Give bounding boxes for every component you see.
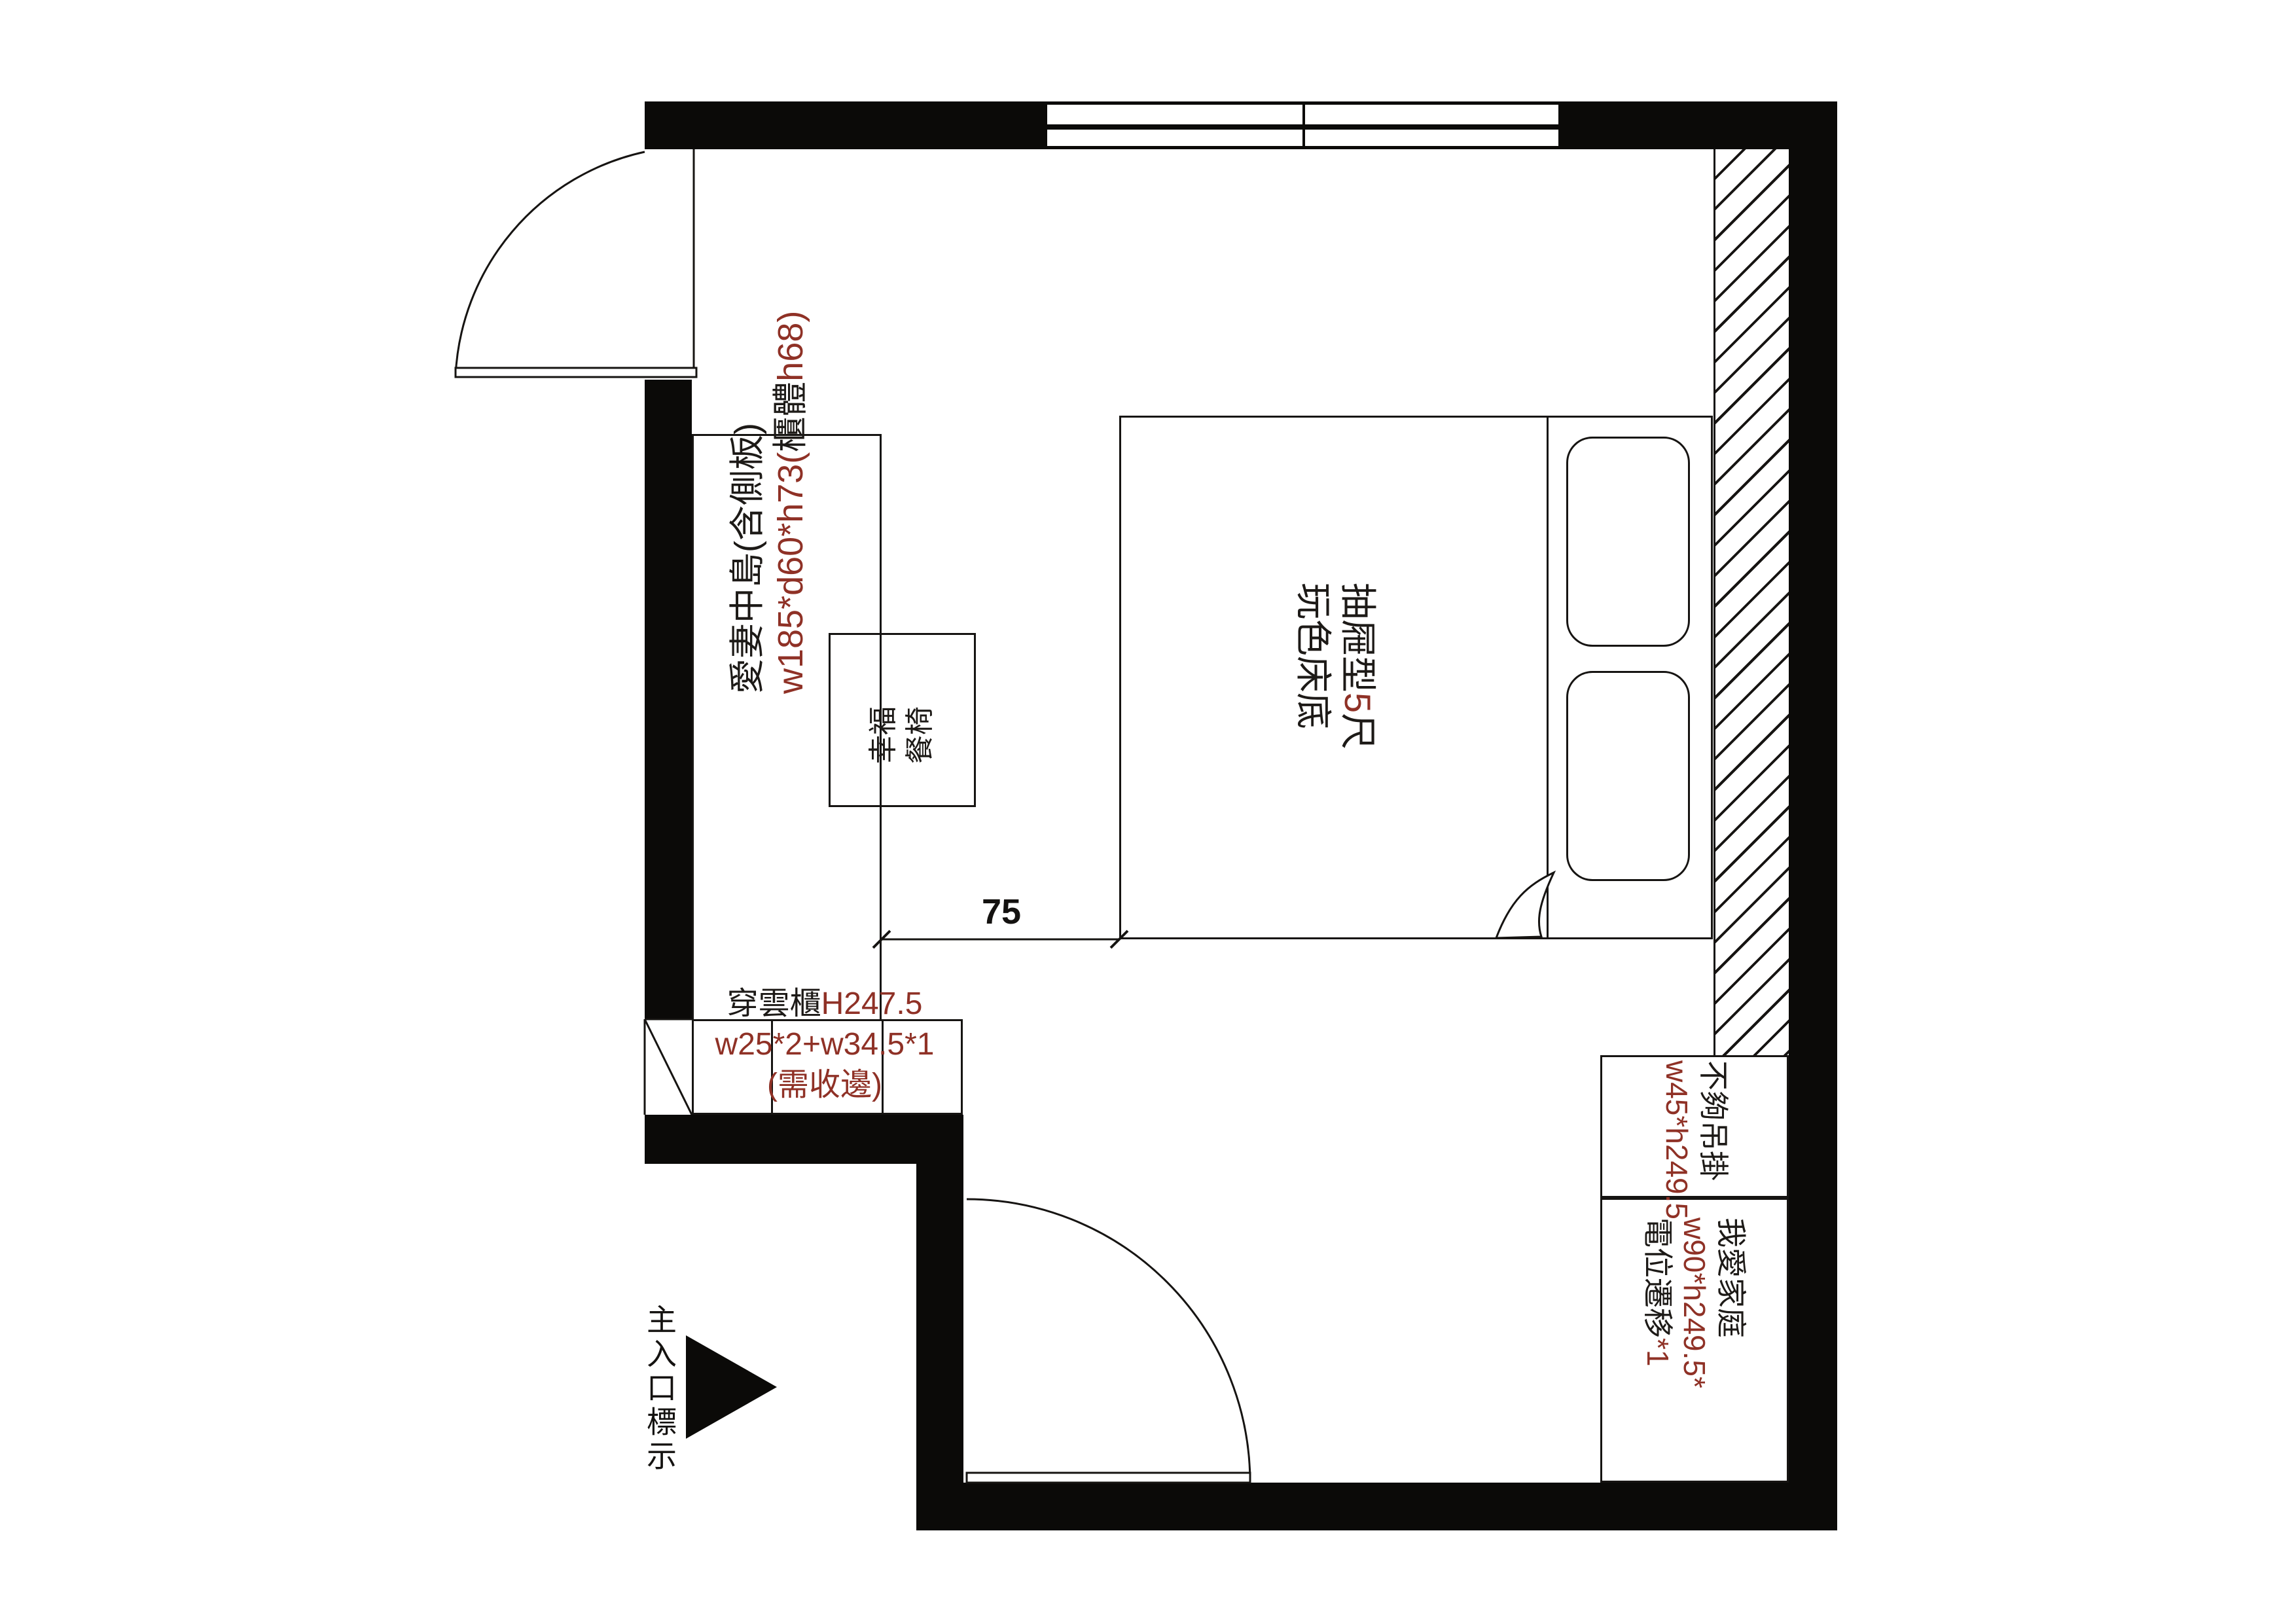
entrance-arrow-icon: [686, 1335, 777, 1439]
mattress-corner-curl-icon: [1496, 873, 1554, 938]
chair-label-line2: 餐椅: [902, 679, 939, 764]
entrance-label: 主入口標示: [638, 1304, 681, 1481]
island-label-line2: w185*d60*h73(櫃體h68): [769, 419, 812, 694]
family-cabinet-label-line1: 我愛家庭: [1713, 1218, 1749, 1479]
bed-label: 抽屜型5尺 玩色床底: [1291, 583, 1380, 779]
chair-label-line1: 幸福: [865, 679, 902, 764]
family-cabinet-label-line3: 電位遷移*1: [1640, 1218, 1676, 1479]
entry-door-leaf: [456, 368, 696, 377]
family-cabinet-label-line2: w90*h249.5*: [1676, 1218, 1713, 1479]
room-door-leaf: [967, 1473, 1250, 1483]
floor-plan: 愛妻中島(含側板) w185*d60*h73(櫃體h68) 幸福 餐椅 抽屜型5…: [0, 0, 2296, 1624]
entry-door-swing-arc: [456, 152, 645, 376]
chair-label: 幸福 餐椅: [865, 679, 939, 764]
wardrobe-label-line3: (需收邊): [681, 1065, 969, 1106]
island-label-line1: 愛妻中島(含側板): [726, 419, 769, 694]
bed-label-line1: 抽屜型5尺: [1335, 583, 1380, 779]
wardrobe-label: 穿雲櫃H247.5 w25*2+w34.5*1 (需收邊): [681, 984, 969, 1106]
island-label: 愛妻中島(含側板) w185*d60*h73(櫃體h68): [726, 419, 812, 694]
dimension-value: 75: [942, 892, 1060, 932]
wardrobe-label-line2: w25*2+w34.5*1: [681, 1024, 969, 1065]
family-cabinet-label: 我愛家庭 w90*h249.5* 電位遷移*1: [1640, 1218, 1749, 1479]
wardrobe-label-line1: 穿雲櫃H247.5: [681, 984, 969, 1024]
room-door-swing-arc: [967, 1199, 1250, 1483]
linework-layer: [0, 0, 2296, 1624]
bed-label-line2: 玩色床底: [1291, 583, 1335, 779]
